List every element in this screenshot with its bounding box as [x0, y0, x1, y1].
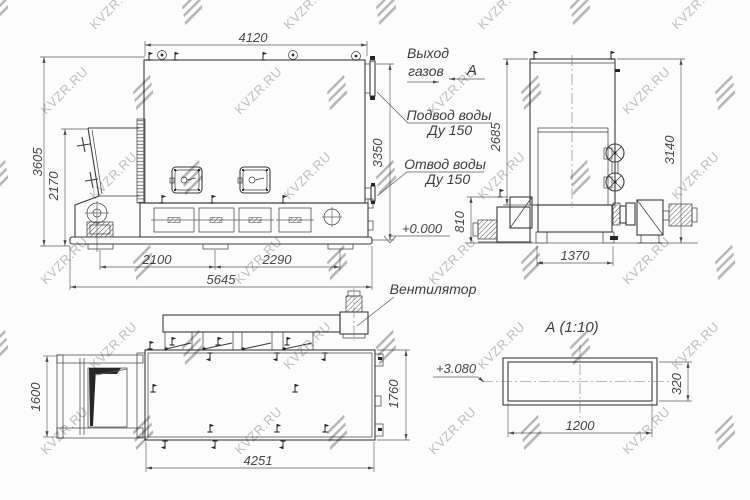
anchor-bolt-icon: [274, 424, 281, 432]
anchor-bolt-icon: [211, 441, 218, 449]
inspection-hatch: [170, 167, 202, 193]
anchor-bolt-icon: [172, 52, 179, 60]
section-duct: [482, 345, 678, 418]
anchor-bolt-icon: [150, 384, 157, 392]
dim-plan-width-bottom: 4251: [244, 453, 273, 468]
plan-body: [145, 350, 383, 449]
dim-height-hopper: 2170: [46, 171, 61, 202]
dim-side-base-height: 810: [452, 210, 467, 232]
dim-height-right: 3350: [370, 138, 385, 168]
water-in-label-1: Подвод воды: [407, 107, 493, 123]
front-boiler-body: [140, 51, 373, 238]
valve-handwheels: [604, 144, 624, 191]
anchor-bolt-icon: [146, 52, 153, 60]
water-in-label-2: Ду 150: [426, 122, 472, 138]
anchor-bolt-icon: [206, 353, 213, 361]
anchor-bolt-icon: [497, 189, 504, 197]
level-arrow-icon: [478, 377, 484, 382]
anchor-bolt-icon: [292, 384, 299, 392]
lifting-eye-icon: [158, 51, 167, 60]
dim-plan-depth-right: 1760: [386, 379, 401, 409]
dim-width-overall: 5645: [207, 272, 237, 287]
plan-hopper: [57, 341, 154, 438]
front-fuel-hopper: [75, 119, 145, 252]
dim-width-top: 4120: [239, 30, 269, 45]
dim-side-height-left: 2685: [488, 122, 503, 153]
section-dimensions: +3.080 1200 320: [433, 361, 692, 437]
side-stoker-assembly: [610, 200, 697, 243]
dim-foot-right: 2290: [262, 252, 293, 267]
plan-air-manifold: [163, 315, 340, 351]
ladder-strip: [137, 119, 145, 203]
section-view: А (1:10) +3.080 1200 320: [433, 319, 692, 437]
anchor-bolt-icon: [169, 337, 176, 345]
anchor-bolt-icon: [273, 353, 280, 361]
water-out-label-2: Ду 150: [424, 171, 470, 187]
level-zero-text: +0.000: [402, 221, 443, 236]
lifting-lug-icon: [608, 51, 615, 59]
dim-foot-left: 2100: [142, 252, 173, 267]
inspection-hatch: [238, 167, 270, 193]
lifting-eye-icon: [289, 51, 298, 60]
front-annotations: Выход газов А Подвод воды Ду 150 Отвод в…: [377, 45, 492, 196]
anchor-bolt-icon: [279, 441, 286, 449]
boiler-technical-drawing: 4120 3605 2170 3350 2100 2290 5645: [0, 0, 750, 500]
dim-side-width-bottom: 1370: [561, 248, 591, 263]
anchor-bolt-icon: [280, 195, 287, 203]
anchor-bolt-icon: [147, 341, 154, 349]
anchor-bolt-icon: [159, 195, 166, 203]
water-out-label-1: Отвод воды: [404, 156, 486, 172]
drawing-sheet: 4120 3605 2170 3350 2100 2290 5645: [0, 0, 750, 500]
dim-height-total: 3605: [30, 147, 45, 177]
fan-label: Вентилятор: [390, 281, 477, 297]
section-title: А (1:10): [544, 319, 598, 336]
dim-section-width: 1200: [566, 418, 596, 433]
ash-doors: [151, 207, 342, 232]
plan-view: 1600 1760 4251 Вентилятор: [28, 281, 477, 472]
dim-side-height-right: 3140: [662, 135, 677, 165]
lifting-lug-icon: [531, 51, 538, 59]
gas-outlet-flange: [365, 56, 375, 100]
anchor-bolt-icon: [322, 424, 329, 432]
plan-fan: [340, 288, 368, 341]
water-flange: [365, 183, 375, 204]
anchor-bolt-icon: [284, 337, 291, 345]
lifting-eye-icon: [352, 52, 361, 61]
dim-section-height: 320: [669, 372, 684, 394]
front-view: 4120 3605 2170 3350 2100 2290 5645: [30, 30, 492, 290]
anchor-bolt-icon: [215, 337, 222, 345]
gas-outlet-label-1: Выход: [407, 45, 449, 61]
anchor-bolt-icon: [260, 52, 267, 60]
side-view: 2685 3140 810 1370: [452, 51, 698, 266]
anchor-bolt-icon: [321, 353, 328, 361]
anchor-bolt-icon: [207, 424, 214, 432]
plan-dimensions: 1600 1760 4251: [28, 350, 410, 472]
section-level-text: +3.080: [436, 361, 477, 376]
anchor-bolt-icon: [209, 195, 216, 203]
anchor-bolt-icon: [161, 441, 168, 449]
plan-annotations: Вентилятор: [357, 281, 477, 326]
dim-plan-depth-left: 1600: [28, 382, 43, 412]
section-arrow-label: А: [466, 62, 477, 79]
front-base-skid: [70, 237, 372, 249]
gas-outlet-label-2: газов: [408, 63, 444, 79]
